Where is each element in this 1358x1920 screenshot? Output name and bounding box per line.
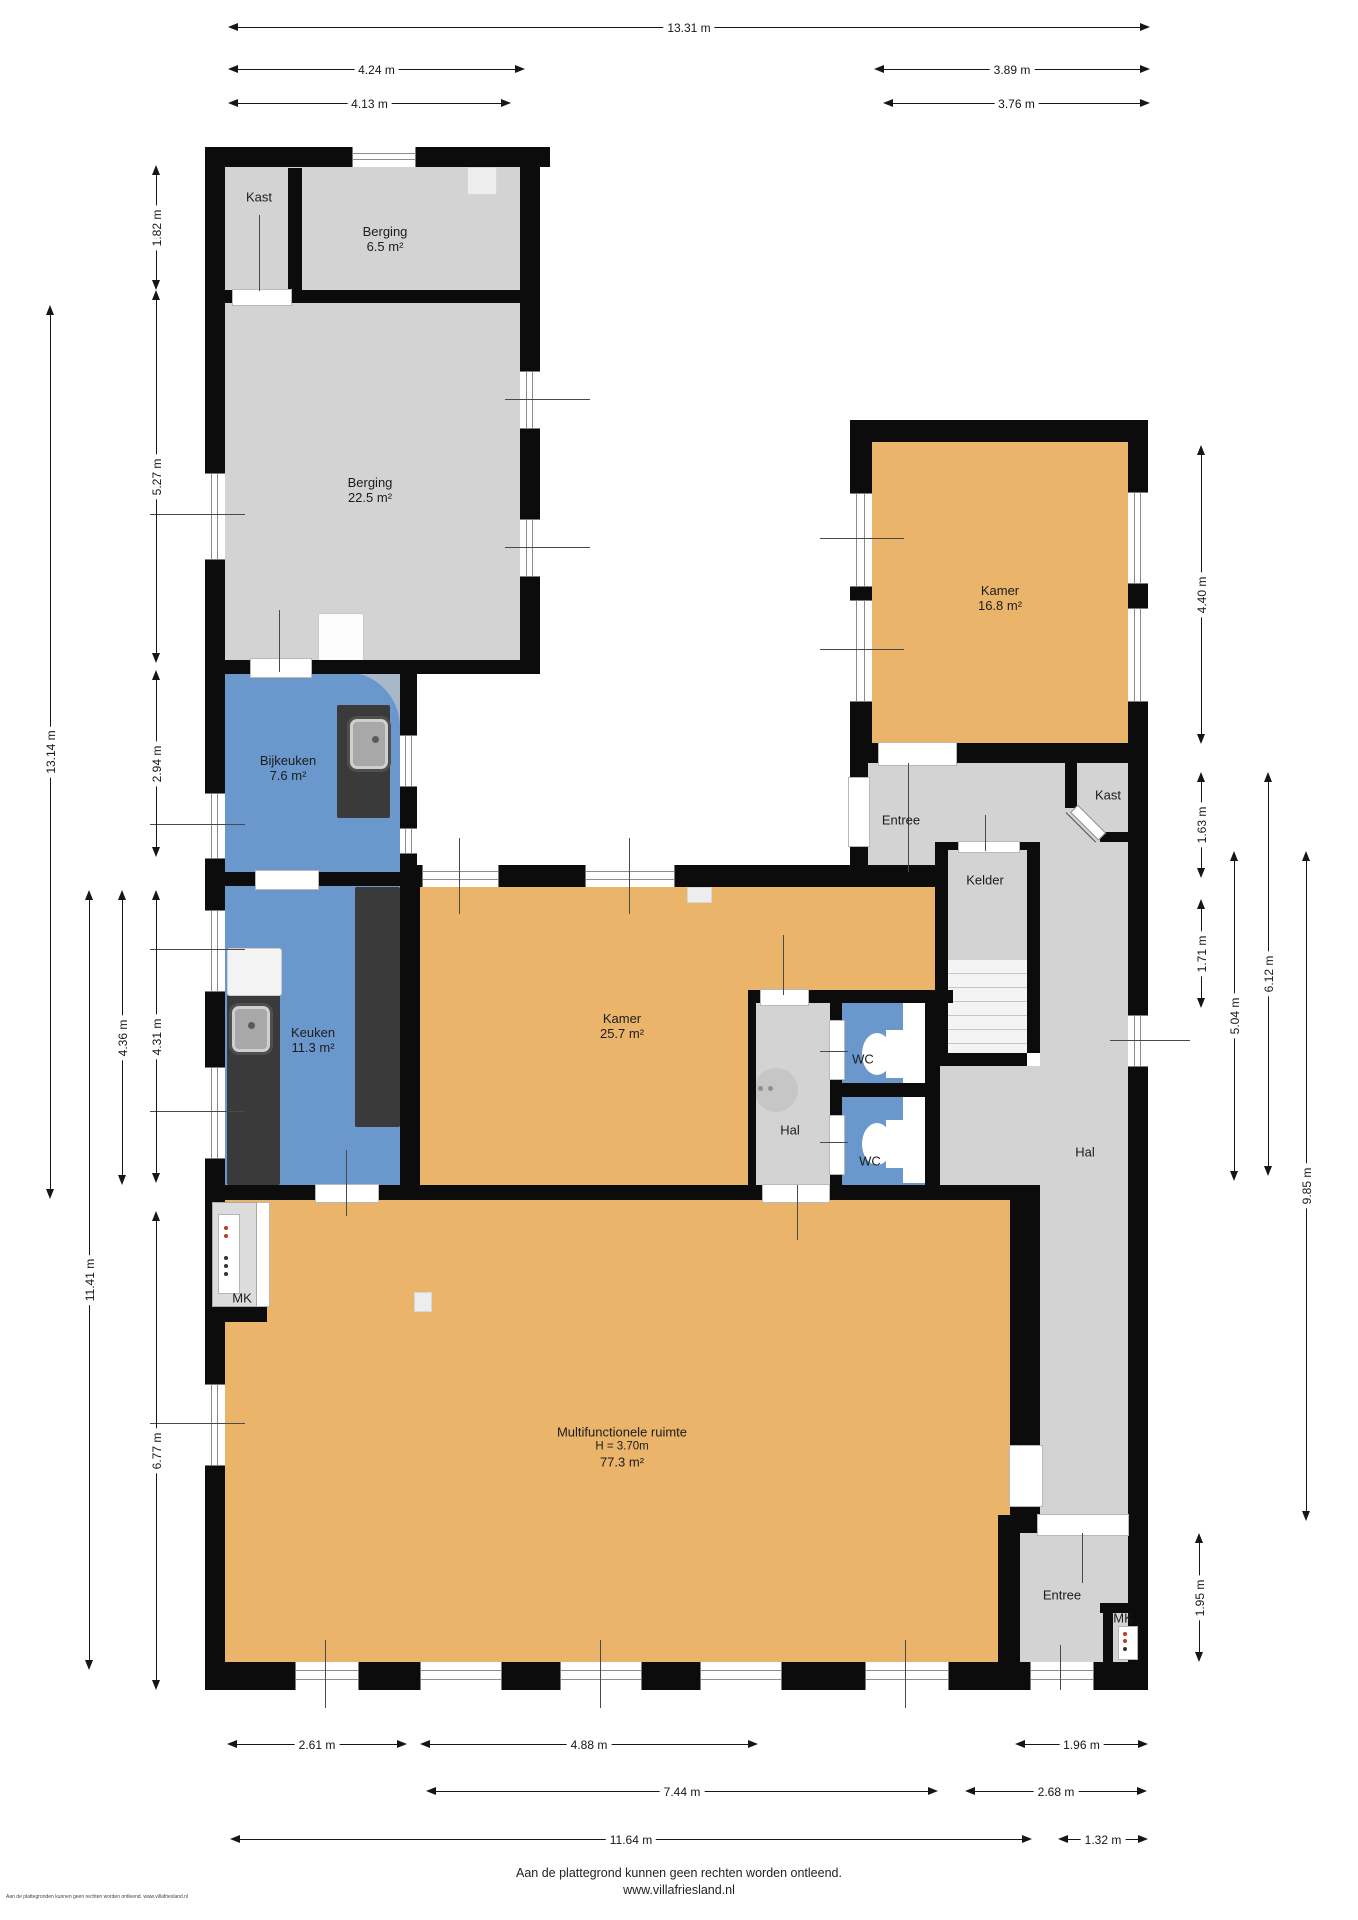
toilet-tank	[886, 1120, 904, 1168]
wall-notch	[467, 167, 497, 195]
room-label-keuken: Keuken11.3 m²	[291, 1025, 335, 1055]
door-swing-line	[279, 610, 280, 672]
hal-basin-tap	[768, 1086, 773, 1091]
dim-1.71m: 1.71 m	[1197, 899, 1207, 1008]
meter-dot	[1123, 1647, 1127, 1651]
dim-1.82m: 1.82 m	[152, 165, 162, 290]
meter-dot	[224, 1264, 228, 1268]
dim-4.31m: 4.31 m	[152, 890, 162, 1183]
dim-4.88m: 4.88 m	[420, 1740, 758, 1750]
window	[560, 1662, 642, 1690]
window-tick	[150, 1423, 245, 1424]
toilet-tank	[886, 1030, 904, 1078]
window	[295, 1662, 359, 1690]
dim-13.14m: 13.14 m	[46, 305, 56, 1199]
window	[520, 371, 540, 429]
window-tick	[150, 1111, 245, 1112]
window-tick	[505, 547, 590, 548]
door-opening	[829, 1115, 845, 1175]
dim-4.13m: 4.13 m	[228, 99, 511, 109]
window	[850, 600, 872, 702]
window-tick	[505, 399, 590, 400]
door-swing-line	[259, 215, 260, 291]
wall	[288, 168, 302, 292]
window-tick	[820, 538, 904, 539]
dim-7.44m: 7.44 m	[426, 1787, 938, 1797]
room-label-hal-right: Hal	[1075, 1145, 1095, 1160]
window	[205, 910, 225, 992]
door-swing-line	[1060, 1645, 1061, 1690]
window-tick	[629, 838, 630, 914]
window-tick	[150, 514, 245, 515]
footer-disclaimer: Aan de plattegrond kunnen geen rechten w…	[0, 1866, 1358, 1880]
door-opening	[1009, 1445, 1043, 1507]
room-label-kast-nw: Kast	[246, 190, 272, 205]
window	[400, 735, 417, 787]
room-label-wc-1: WC	[852, 1052, 874, 1067]
dim-2.94m: 2.94 m	[152, 670, 162, 857]
dim-4.24m: 4.24 m	[228, 65, 525, 75]
wall	[205, 1305, 267, 1322]
wall	[400, 886, 420, 1200]
wall	[850, 420, 1148, 442]
floorplan-page: KastBerging6.5 m²Berging22.5 m²Bijkeuken…	[0, 0, 1358, 1920]
window-tick	[600, 1640, 601, 1708]
keuken-sink	[229, 1003, 273, 1055]
room-label-mk-top: MK	[232, 1291, 252, 1306]
wall-notch	[687, 887, 712, 903]
door-opening	[1037, 1514, 1129, 1536]
room-label-berging-65: Berging6.5 m²	[363, 224, 408, 254]
wall	[935, 842, 948, 1066]
dim-5.04m: 5.04 m	[1230, 851, 1240, 1181]
window	[1128, 608, 1148, 702]
dim-4.40m: 4.40 m	[1197, 445, 1207, 744]
keuken-cabinet-right	[355, 887, 400, 1127]
dim-2.61m: 2.61 m	[227, 1740, 407, 1750]
meter-dot	[224, 1234, 228, 1238]
wall	[748, 1003, 756, 1185]
column	[414, 1292, 432, 1312]
door-tick	[820, 1142, 848, 1143]
window-tick	[459, 838, 460, 914]
keuken-fridge	[227, 948, 282, 996]
door-swing-line	[985, 815, 986, 851]
wall	[935, 1053, 1027, 1066]
window	[205, 1384, 225, 1466]
dim-11.41m: 11.41 m	[85, 890, 95, 1670]
window	[205, 473, 225, 560]
room-label-kast-right: Kast	[1095, 788, 1121, 803]
wall	[830, 1083, 940, 1097]
dim-5.27m: 5.27 m	[152, 290, 162, 663]
dim-1.96m: 1.96 m	[1015, 1740, 1148, 1750]
dim-9.85m: 9.85 m	[1302, 851, 1312, 1521]
room-label-kamer-168: Kamer16.8 m²	[978, 583, 1022, 613]
meter-dot	[1123, 1632, 1127, 1636]
room-label-entree-bottom: Entree	[1043, 1588, 1081, 1603]
meter-dot	[224, 1272, 228, 1276]
dim-1.32m: 1.32 m	[1058, 1835, 1148, 1845]
window-tick	[150, 949, 245, 950]
window	[422, 865, 499, 887]
berging-cabinet	[318, 613, 364, 663]
window-tick	[820, 649, 904, 650]
wc-cistern-strip	[903, 1097, 925, 1183]
dim-1.63m: 1.63 m	[1197, 772, 1207, 878]
window-tick	[905, 1640, 906, 1708]
dim-3.89m: 3.89 m	[874, 65, 1150, 75]
window-tick	[150, 824, 245, 825]
window	[865, 1662, 949, 1690]
room-label-wc-2: WC	[859, 1154, 881, 1169]
dim-1.95m: 1.95 m	[1195, 1533, 1205, 1662]
door-swing-line	[783, 935, 784, 995]
floor-kelder	[940, 848, 1027, 960]
door-opening	[255, 1202, 270, 1307]
tiny-disclaimer: Aan de plattegronden kunnen geen rechten…	[6, 1894, 188, 1900]
window	[205, 1067, 225, 1159]
dim-11.64m: 11.64 m	[230, 1835, 1032, 1845]
dim-2.68m: 2.68 m	[965, 1787, 1147, 1797]
dim-3.76m: 3.76 m	[883, 99, 1150, 109]
room-label-mfr: Multifunctionele ruimteH = 3.70m77.3 m²	[557, 1425, 687, 1470]
window	[850, 493, 872, 587]
wall	[1027, 842, 1040, 1053]
room-label-berging-225: Berging22.5 m²	[348, 475, 393, 505]
room-label-mk-bottom: MK	[1113, 1611, 1133, 1626]
door-opening	[848, 777, 870, 847]
hal-basin-tap	[758, 1086, 763, 1091]
window	[1128, 492, 1148, 584]
door-opening	[250, 658, 312, 678]
door-swing-line	[1082, 1533, 1083, 1583]
floor-hal-pocket	[940, 1066, 1040, 1185]
meter-dot	[224, 1256, 228, 1260]
window	[700, 1662, 782, 1690]
window-tick	[1110, 1040, 1190, 1041]
window	[352, 147, 416, 167]
door-swing-line	[797, 1185, 798, 1240]
door-opening	[255, 870, 319, 890]
door-opening	[762, 1184, 830, 1203]
room-label-kelder: Kelder	[966, 873, 1004, 888]
wall	[998, 1533, 1020, 1663]
stairs	[948, 960, 1027, 1053]
window-tick	[325, 1640, 326, 1708]
door-swing-line	[346, 1150, 347, 1216]
door-opening	[958, 841, 1020, 853]
wc-cistern-strip	[903, 1003, 925, 1083]
dim-6.12m: 6.12 m	[1264, 772, 1274, 1176]
door-opening	[315, 1184, 379, 1203]
keuken-faucet	[248, 1022, 255, 1029]
meter-cabinet-panel	[1118, 1626, 1138, 1660]
window	[1030, 1662, 1094, 1690]
meter-dot	[1123, 1639, 1127, 1643]
window	[400, 828, 417, 854]
window	[1128, 1015, 1148, 1067]
footer-url[interactable]: www.villafriesland.nl	[0, 1883, 1358, 1897]
door-opening	[760, 989, 809, 1006]
meter-cabinet-panel	[218, 1214, 240, 1294]
window	[205, 793, 225, 859]
room-label-kamer-257: Kamer25.7 m²	[600, 1011, 644, 1041]
floor-hal-right	[1040, 848, 1128, 1533]
dim-13.31m: 13.31 m	[228, 23, 1150, 33]
room-label-entree-mid: Entree	[882, 813, 920, 828]
room-label-hal-center: Hal	[780, 1123, 800, 1138]
door-opening	[878, 742, 957, 766]
door-opening	[232, 289, 292, 306]
window	[420, 1662, 502, 1690]
wall	[1103, 1612, 1113, 1664]
room-label-bijkeuken: Bijkeuken7.6 m²	[260, 753, 316, 783]
window	[520, 519, 540, 577]
door-opening	[829, 1020, 845, 1080]
wall	[1065, 763, 1077, 808]
dim-4.36m: 4.36 m	[118, 890, 128, 1185]
dim-6.77m: 6.77 m	[152, 1211, 162, 1690]
window	[585, 865, 675, 887]
door-tick	[820, 1051, 848, 1052]
meter-dot	[224, 1226, 228, 1230]
